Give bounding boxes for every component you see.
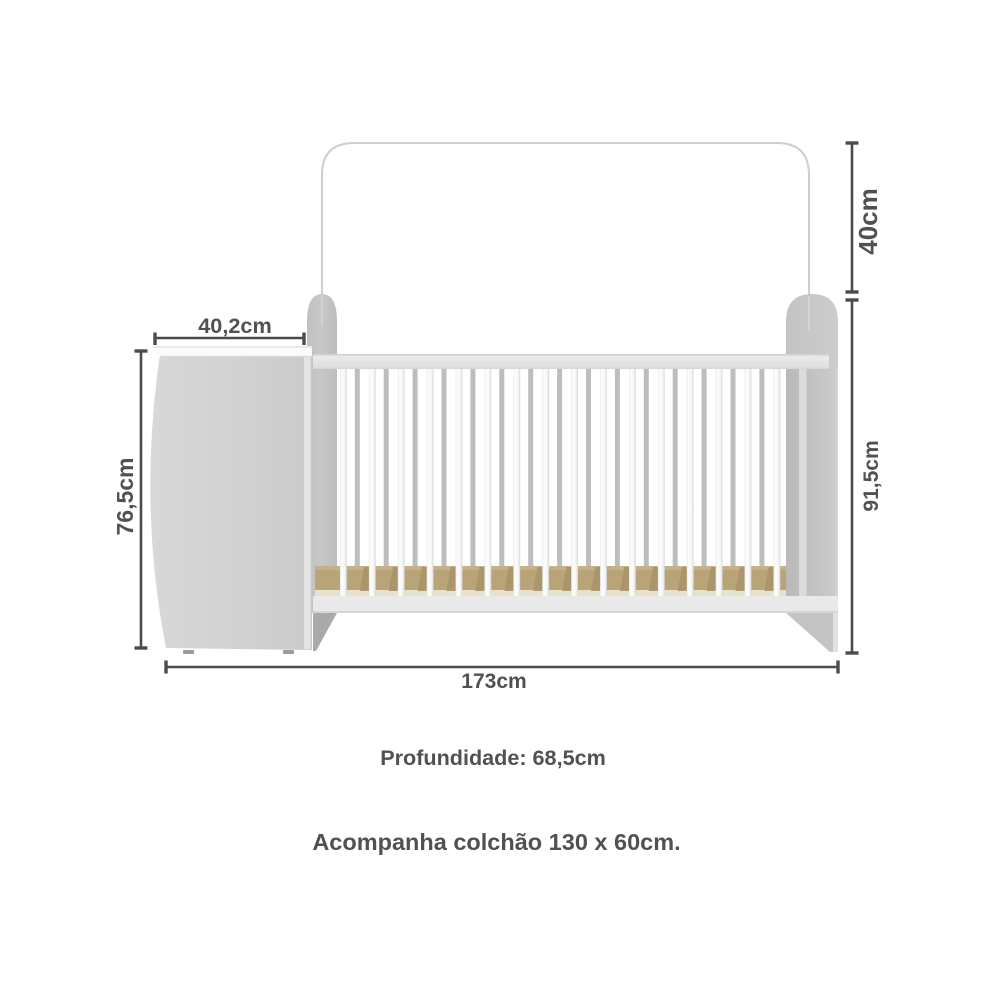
svg-text:173cm: 173cm (461, 670, 526, 693)
svg-text:Profundidade: 68,5cm: Profundidade: 68,5cm (380, 745, 606, 770)
svg-text:76,5cm: 76,5cm (112, 457, 138, 535)
svg-text:Acompanha colchão 130 x 60cm.: Acompanha colchão 130 x 60cm. (312, 829, 680, 855)
svg-text:40,2cm: 40,2cm (198, 313, 272, 338)
svg-text:91,5cm: 91,5cm (860, 440, 883, 511)
svg-text:40cm: 40cm (853, 188, 883, 255)
